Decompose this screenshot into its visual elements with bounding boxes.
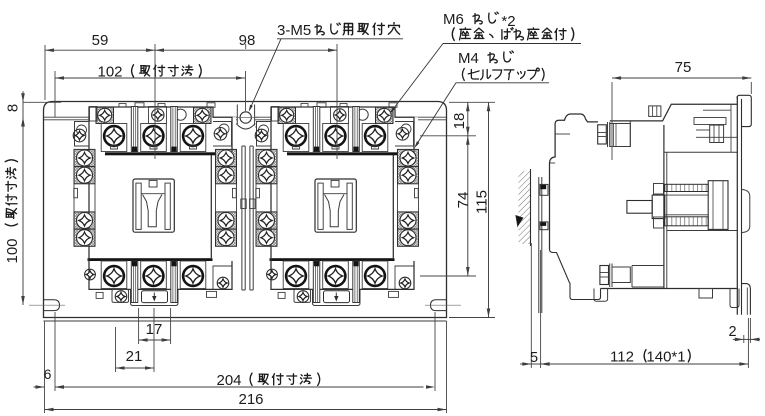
svg-text:112: 112 xyxy=(610,349,634,366)
svg-text:216: 216 xyxy=(238,391,263,408)
svg-text:204: 204 xyxy=(216,372,241,389)
svg-text:75: 75 xyxy=(675,59,692,76)
svg-text:115: 115 xyxy=(474,190,491,214)
svg-text:8: 8 xyxy=(5,104,22,112)
svg-text:3-M5: 3-M5 xyxy=(277,22,311,39)
svg-text:M6: M6 xyxy=(443,11,464,28)
svg-text:M4: M4 xyxy=(458,50,479,67)
svg-text:18: 18 xyxy=(451,113,468,130)
svg-text:102: 102 xyxy=(97,64,122,81)
svg-text:*2: *2 xyxy=(501,13,515,30)
svg-text:98: 98 xyxy=(239,32,256,49)
svg-text:21: 21 xyxy=(126,348,143,365)
svg-text:2: 2 xyxy=(728,324,736,340)
svg-text:5: 5 xyxy=(530,350,538,366)
svg-text:59: 59 xyxy=(92,32,109,49)
svg-text:6: 6 xyxy=(44,366,52,382)
svg-text:140*1: 140*1 xyxy=(646,349,685,366)
svg-text:17: 17 xyxy=(146,321,163,338)
svg-text:74: 74 xyxy=(455,192,472,209)
svg-text:100: 100 xyxy=(4,238,21,263)
